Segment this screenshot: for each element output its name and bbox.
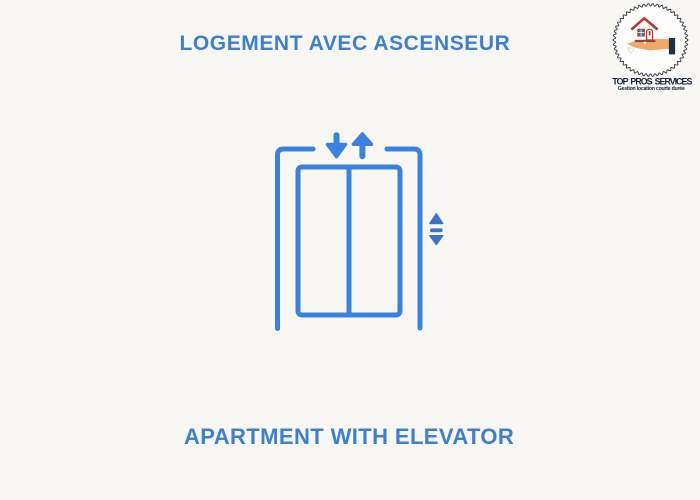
- svg-text:TOP PROS SERVICES: TOP PROS SERVICES: [612, 76, 692, 86]
- svg-text:Gestion location courte durée: Gestion location courte durée: [618, 86, 685, 92]
